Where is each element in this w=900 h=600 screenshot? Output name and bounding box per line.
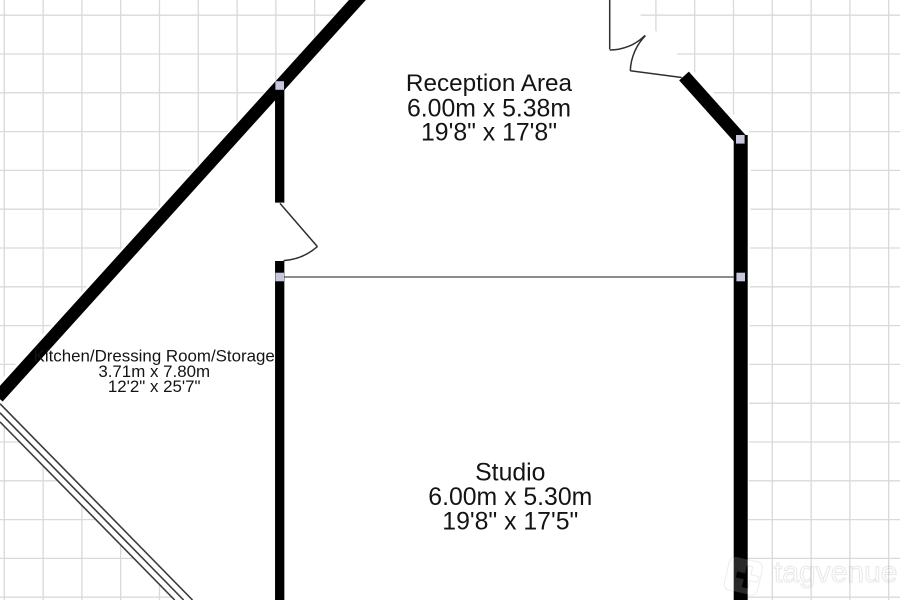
svg-text:19'8" x 17'5": 19'8" x 17'5" bbox=[442, 509, 578, 536]
svg-text:6.00m x 5.30m: 6.00m x 5.30m bbox=[428, 484, 592, 511]
svg-text:Reception Area: Reception Area bbox=[406, 70, 573, 97]
svg-text:Studio: Studio bbox=[475, 459, 545, 486]
svg-text:tagvenue: tagvenue bbox=[774, 556, 897, 589]
svg-text:19'8" x 17'8": 19'8" x 17'8" bbox=[421, 120, 557, 147]
svg-text:12'2" x 25'7": 12'2" x 25'7" bbox=[108, 377, 201, 396]
svg-text:6.00m x 5.38m: 6.00m x 5.38m bbox=[407, 95, 571, 122]
